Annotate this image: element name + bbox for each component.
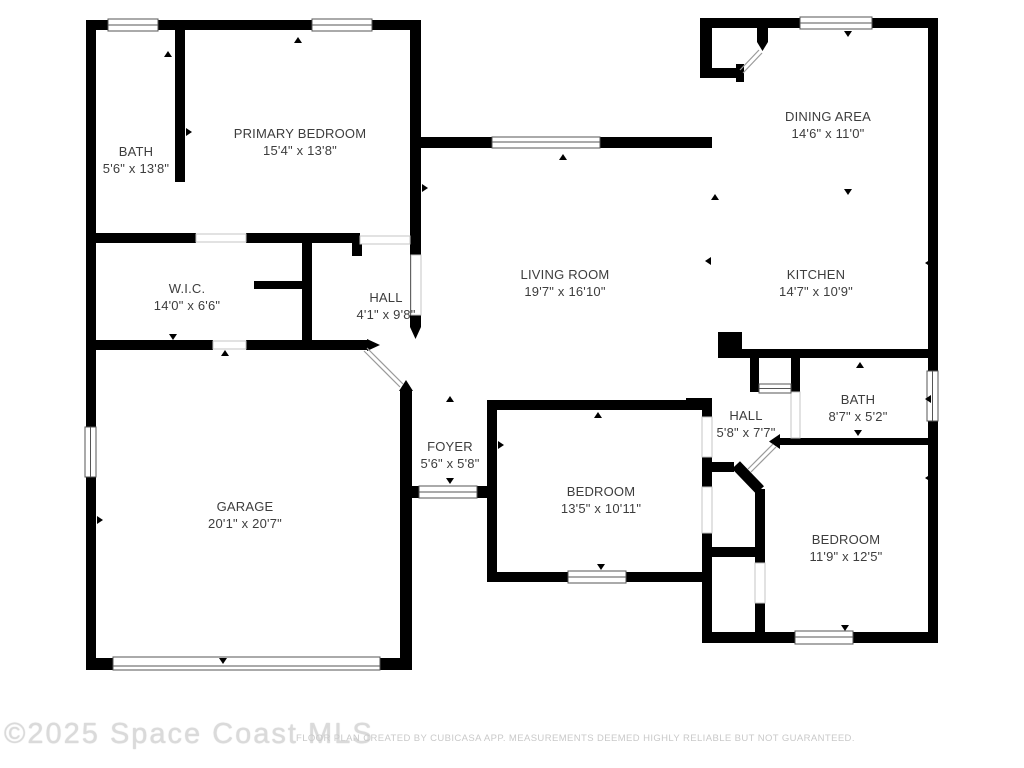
room-label-primary-bedroom: PRIMARY BEDROOM 15'4" x 13'8" xyxy=(234,125,367,159)
room-name: HALL xyxy=(356,289,415,306)
room-name: FOYER xyxy=(420,438,479,455)
room-name: W.I.C. xyxy=(154,280,220,297)
room-label-bedroom-1: BEDROOM 13'5" x 10'11" xyxy=(561,483,641,517)
garage-door xyxy=(113,657,380,670)
room-name: BEDROOM xyxy=(810,531,883,548)
room-label-garage: GARAGE 20'1" x 20'7" xyxy=(208,498,282,532)
room-label-living-room: LIVING ROOM 19'7" x 16'10" xyxy=(521,266,610,300)
room-dims: 11'9" x 12'5" xyxy=(810,548,883,565)
room-dims: 14'0" x 6'6" xyxy=(154,297,220,314)
disclaimer-text: FLOOR PLAN CREATED BY CUBICASA APP. MEAS… xyxy=(296,733,855,744)
room-label-hall-2: HALL 5'8" x 7'7" xyxy=(716,407,775,441)
room-label-bath-1: BATH 5'6" x 13'8" xyxy=(103,143,169,177)
room-name: HALL xyxy=(716,407,775,424)
room-name: BEDROOM xyxy=(561,483,641,500)
room-label-foyer: FOYER 5'6" x 5'8" xyxy=(420,438,479,472)
room-label-wic: W.I.C. 14'0" x 6'6" xyxy=(154,280,220,314)
room-name: PRIMARY BEDROOM xyxy=(234,125,367,142)
room-dims: 4'1" x 9'8" xyxy=(356,306,415,323)
room-dims: 19'7" x 16'10" xyxy=(521,283,610,300)
room-dims: 5'6" x 5'8" xyxy=(420,455,479,472)
room-dims: 14'7" x 10'9" xyxy=(779,283,853,300)
room-name: BATH xyxy=(103,143,169,160)
room-label-dining-area: DINING AREA 14'6" x 11'0" xyxy=(785,108,871,142)
room-dims: 20'1" x 20'7" xyxy=(208,515,282,532)
room-dims: 14'6" x 11'0" xyxy=(785,125,871,142)
room-name: LIVING ROOM xyxy=(521,266,610,283)
room-dims: 5'6" x 13'8" xyxy=(103,160,169,177)
room-label-bath-2: BATH 8'7" x 5'2" xyxy=(828,391,887,425)
room-name: KITCHEN xyxy=(779,266,853,283)
room-name: GARAGE xyxy=(208,498,282,515)
room-dims: 13'5" x 10'11" xyxy=(561,500,641,517)
room-dims: 15'4" x 13'8" xyxy=(234,142,367,159)
room-label-kitchen: KITCHEN 14'7" x 10'9" xyxy=(779,266,853,300)
room-label-hall-1: HALL 4'1" x 9'8" xyxy=(356,289,415,323)
room-name: DINING AREA xyxy=(785,108,871,125)
room-name: BATH xyxy=(828,391,887,408)
room-dims: 5'8" x 7'7" xyxy=(716,424,775,441)
floorplan-page: BATH 5'6" x 13'8" PRIMARY BEDROOM 15'4" … xyxy=(0,0,1024,768)
room-label-bedroom-2: BEDROOM 11'9" x 12'5" xyxy=(810,531,883,565)
room-dims: 8'7" x 5'2" xyxy=(828,408,887,425)
